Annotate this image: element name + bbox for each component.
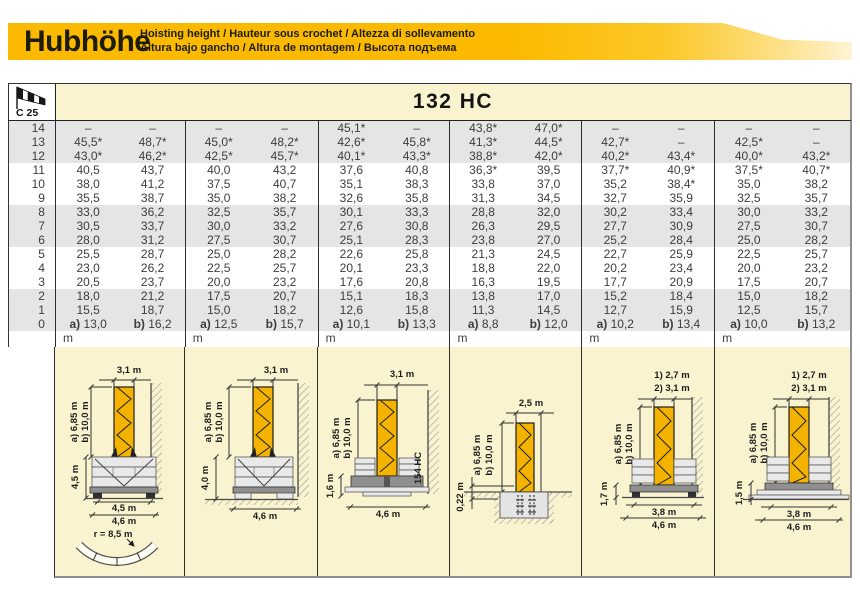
column-2: a) 12,5b) 15,7 [185, 317, 318, 331]
height-value: 20,0 [715, 261, 782, 275]
height-value: – [648, 121, 714, 135]
height-value: 37,5* [715, 163, 782, 177]
height-value: 30,7 [783, 219, 850, 233]
height-value: 28,2 [252, 247, 318, 261]
subtitle-block: Hoisting height / Hauteur sous crochet /… [140, 28, 475, 55]
height-value: 23,3 [384, 261, 449, 275]
column-6: 32,535,7 [714, 191, 850, 205]
column-2: 25,028,2 [185, 247, 318, 261]
height-value: 25,8 [384, 247, 449, 261]
height-value: 21,2 [120, 289, 184, 303]
unit-label: m [449, 331, 581, 347]
height-value: 32,7 [582, 191, 648, 205]
height-value: 15,1 [319, 289, 384, 303]
height-value: 45,8* [384, 135, 449, 149]
column-3: 15,118,3 [318, 289, 450, 303]
height-value: 43,7 [120, 163, 184, 177]
height-value: 45,0* [186, 135, 252, 149]
height-value: 31,2 [120, 233, 184, 247]
height-value: – [120, 121, 184, 135]
row-label: 10 [9, 177, 55, 191]
height-value: 40,7 [252, 177, 318, 191]
column-3: 35,138,3 [318, 177, 450, 191]
dim-depth: 0,22 m [455, 482, 466, 512]
tower-mast [377, 400, 397, 476]
table-row: 14––––45,1*–43,8*47,0*–––– [9, 121, 850, 135]
height-value: – [252, 121, 318, 135]
column-3: a) 10,1b) 13,3 [318, 317, 450, 331]
height-value: 38,8* [450, 149, 515, 163]
height-value: 25,0 [715, 233, 782, 247]
height-value: 23,2 [252, 275, 318, 289]
height-value: 41,3* [450, 135, 515, 149]
unit-label: m [185, 331, 318, 347]
height-value: 22,6 [319, 247, 384, 261]
table-row: 0a) 13,0b) 16,2a) 12,5b) 15,7a) 10,1b) 1… [9, 317, 850, 331]
height-value: 45,7* [252, 149, 318, 163]
column-3: 25,128,3 [318, 233, 450, 247]
column-2: 15,018,2 [185, 303, 318, 317]
height-value: 25,7 [783, 247, 850, 261]
height-value: 27,0 [516, 233, 581, 247]
column-1: 20,523,7 [55, 275, 185, 289]
height-value: 25,0 [186, 247, 252, 261]
column-2: 35,038,2 [185, 191, 318, 205]
column-3: 17,620,8 [318, 275, 450, 289]
height-value: 35,0 [715, 177, 782, 191]
dim-base-height: 4,5 m [70, 465, 81, 489]
height-value: 28,0 [56, 233, 120, 247]
row-label: 13 [9, 135, 55, 149]
tower-mast [110, 387, 138, 459]
height-value: 20,0 [186, 275, 252, 289]
row-label: 7 [9, 219, 55, 233]
height-value: 20,8 [384, 275, 449, 289]
height-value: 33,7 [120, 219, 184, 233]
column-3: 22,625,8 [318, 247, 450, 261]
height-value: 22,5 [715, 247, 782, 261]
dim-overall-width: 4,6 m [376, 509, 400, 520]
dim-top-width: 2,5 m [519, 398, 543, 409]
column-1: 38,041,2 [55, 177, 185, 191]
height-value: 44,5* [516, 135, 581, 149]
column-3: 37,640,8 [318, 163, 450, 177]
column-5: –– [581, 121, 714, 135]
height-value: 23,7 [120, 275, 184, 289]
height-value: 35,8 [384, 191, 449, 205]
table-row: 1140,543,740,043,237,640,836,3*39,537,7*… [9, 163, 850, 177]
height-value: 37,5 [186, 177, 252, 191]
row-label: 0 [9, 317, 55, 331]
height-value: 40,0 [186, 163, 252, 177]
dim-overall-width: 4,6 m [652, 520, 676, 531]
column-6: 40,0*43,2* [714, 149, 850, 163]
dim-top-width: 3,1 m [264, 365, 288, 376]
height-value: 20,7 [252, 289, 318, 303]
column-4: 21,324,5 [449, 247, 581, 261]
height-value: 42,5* [186, 149, 252, 163]
height-value: 23,2 [783, 261, 850, 275]
wind-class-badge: C 25 [9, 84, 56, 120]
height-value: 33,8 [450, 177, 515, 191]
table-row: 320,523,720,023,217,620,816,319,517,720,… [9, 275, 850, 289]
height-value: – [582, 121, 648, 135]
column-5: 17,720,9 [581, 275, 714, 289]
height-value: 19,5 [516, 275, 581, 289]
table-row: 115,518,715,018,212,615,811,314,512,715,… [9, 303, 850, 317]
height-value: 45,5* [56, 135, 120, 149]
column-5: 15,218,4 [581, 289, 714, 303]
column-5: 32,735,9 [581, 191, 714, 205]
height-value: 20,7 [783, 275, 850, 289]
dim-mast-a: a) 6,85 m [69, 402, 80, 443]
column-1: 18,021,2 [55, 289, 185, 303]
column-5: 40,2*43,4* [581, 149, 714, 163]
table-row: 935,538,735,038,232,635,831,334,532,735,… [9, 191, 850, 205]
column-4: 11,314,5 [449, 303, 581, 317]
height-value: 35,2 [582, 177, 648, 191]
column-6: –– [714, 121, 850, 135]
height-value: 25,5 [56, 247, 120, 261]
height-value: 30,7 [252, 233, 318, 247]
height-value: 40,5 [56, 163, 120, 177]
height-value: 15,0 [186, 303, 252, 317]
height-value: 25,1 [319, 233, 384, 247]
table-header-row: C 25 132 HC [8, 83, 852, 121]
height-value: – [715, 121, 782, 135]
column-3: 32,635,8 [318, 191, 450, 205]
column-4: 33,837,0 [449, 177, 581, 191]
table-row: 525,528,725,028,222,625,821,324,522,725,… [9, 247, 850, 261]
height-value: 27,6 [319, 219, 384, 233]
height-value: 26,3 [450, 219, 515, 233]
diagram-crossbase-pads: 1) 2,7 m 2) 3,1 m a) 6,85 m b) 10,0 m [714, 347, 851, 576]
height-value: a) 12,5 [186, 317, 252, 331]
height-value: 17,5 [186, 289, 252, 303]
column-4: 38,8*42,0* [449, 149, 581, 163]
dim-mast-b: b) 10,0 m [624, 423, 635, 464]
height-value: 18,0 [56, 289, 120, 303]
height-value: 35,5 [56, 191, 120, 205]
column-4: a) 8,8b) 12,0 [449, 317, 581, 331]
column-6: 15,018,2 [714, 289, 850, 303]
dim-top-width: 3,1 m [390, 369, 414, 380]
height-value: 15,0 [715, 289, 782, 303]
column-1: –– [55, 121, 185, 135]
dim-top-width-1: 1) 2,7 m [654, 370, 689, 381]
height-value: 12,5 [715, 303, 782, 317]
row-label: 12 [9, 149, 55, 163]
height-value: 18,3 [384, 289, 449, 303]
height-value: 35,7 [252, 205, 318, 219]
page-title: Hubhöhe [24, 23, 150, 60]
height-value: 14,5 [516, 303, 581, 317]
height-value: 20,1 [319, 261, 384, 275]
height-value: 31,3 [450, 191, 515, 205]
height-value: 17,0 [516, 289, 581, 303]
height-value: 17,6 [319, 275, 384, 289]
height-value: 18,8 [450, 261, 515, 275]
column-5: 25,228,4 [581, 233, 714, 247]
height-value: 42,6* [319, 135, 384, 149]
table-row: 833,036,232,535,730,133,328,832,030,233,… [9, 205, 850, 219]
diagram-rail-sleepers: 3,1 m a) 6,85 m b) 10,0 m [184, 347, 317, 576]
height-value: 25,2 [582, 233, 648, 247]
height-value: 23,4 [648, 261, 714, 275]
column-5: 35,238,4* [581, 177, 714, 191]
column-3: 12,615,8 [318, 303, 450, 317]
height-value: 15,2 [582, 289, 648, 303]
column-6: 25,028,2 [714, 233, 850, 247]
table-row: 423,026,222,525,720,123,318,822,020,223,… [9, 261, 850, 275]
column-6: 30,033,2 [714, 205, 850, 219]
column-4: 31,334,5 [449, 191, 581, 205]
column-1: 40,543,7 [55, 163, 185, 177]
dim-overall-width: 4,6 m [787, 522, 811, 533]
height-value: 16,3 [450, 275, 515, 289]
height-value: – [384, 121, 449, 135]
row-label: 9 [9, 191, 55, 205]
height-value: 20,9 [648, 275, 714, 289]
column-1: 45,5*48,7* [55, 135, 185, 149]
height-value: 15,7 [783, 303, 850, 317]
subtitle-line-2: Altura bajo gancho / Altura de montagem … [140, 42, 475, 56]
dim-track-radius: r = 8,5 m [94, 529, 133, 540]
column-2: 37,540,7 [185, 177, 318, 191]
dim-mast-a: a) 6,85 m [472, 435, 483, 476]
dim-top-width-2: 2) 3,1 m [654, 383, 689, 394]
column-1: 23,026,2 [55, 261, 185, 275]
column-4: 41,3*44,5* [449, 135, 581, 149]
height-value: 23,0 [56, 261, 120, 275]
row-label: 6 [9, 233, 55, 247]
height-value: – [186, 121, 252, 135]
column-3: 40,1*43,3* [318, 149, 450, 163]
column-2: 30,033,2 [185, 219, 318, 233]
diagram-crossbase-wheels: 1) 2,7 m 2) 3,1 m a) 6,85 m b) 10,0 m [581, 347, 714, 576]
unit-label: m [581, 331, 714, 347]
datasheet-page: Hubhöhe Hoisting height / Hauteur sous c… [0, 0, 860, 600]
column-2: 20,023,2 [185, 275, 318, 289]
column-3: 27,630,8 [318, 219, 450, 233]
dim-overall-width: 4,6 m [112, 516, 136, 527]
height-value: 42,5* [715, 135, 782, 149]
unit-label: m [318, 331, 450, 347]
height-value: a) 8,8 [450, 317, 515, 331]
row-label: 11 [9, 163, 55, 177]
height-value: 18,2 [783, 289, 850, 303]
height-value: 20,5 [56, 275, 120, 289]
column-3: 45,1*– [318, 121, 450, 135]
height-value: 25,7 [252, 261, 318, 275]
height-value: 38,7 [120, 191, 184, 205]
height-value: 36,2 [120, 205, 184, 219]
height-value: 43,8* [450, 121, 515, 135]
height-value: 37,0 [516, 177, 581, 191]
height-value: 24,5 [516, 247, 581, 261]
row-label: 8 [9, 205, 55, 219]
height-value: 12,6 [319, 303, 384, 317]
wind-class-label: C 25 [16, 107, 38, 119]
height-value: 18,7 [120, 303, 184, 317]
height-value: 15,8 [384, 303, 449, 317]
height-value: 43,2* [783, 149, 850, 163]
height-value: b) 16,2 [120, 317, 184, 331]
height-value: 43,3* [384, 149, 449, 163]
column-5: 12,715,9 [581, 303, 714, 317]
tower-mast [516, 423, 534, 492]
height-value: 11,3 [450, 303, 515, 317]
column-5: 22,725,9 [581, 247, 714, 261]
height-value: 41,2 [120, 177, 184, 191]
diagram-rail-crossbase: 3,1 m a) 6,85 m b) 10,0 m [55, 347, 184, 576]
height-value: b) 13,3 [384, 317, 449, 331]
height-value: 28,2 [783, 233, 850, 247]
height-value: 32,6 [319, 191, 384, 205]
dim-mast-b: b) 10,0 m [214, 401, 225, 442]
dim-track-width: 4,5 m [112, 503, 136, 514]
column-1: 30,533,7 [55, 219, 185, 233]
height-value: 32,5 [186, 205, 252, 219]
height-value: 48,7* [120, 135, 184, 149]
height-value: 33,0 [56, 205, 120, 219]
column-6: 22,525,7 [714, 247, 850, 261]
column-2: 32,535,7 [185, 205, 318, 219]
height-value: – [783, 121, 850, 135]
height-value: 38,2 [783, 177, 850, 191]
height-value: 32,0 [516, 205, 581, 219]
column-2: 27,530,7 [185, 233, 318, 247]
height-value: 33,2 [783, 205, 850, 219]
diagram-foundation-anchor: 2,5 m a) 6,85 m b) 10,0 m [449, 347, 581, 576]
column-4: 13,817,0 [449, 289, 581, 303]
tower-mast [249, 387, 277, 459]
height-value: 35,1 [319, 177, 384, 191]
column-2: 45,0*48,2* [185, 135, 318, 149]
column-5: 37,7*40,9* [581, 163, 714, 177]
height-value: 23,8 [450, 233, 515, 247]
column-2: 22,525,7 [185, 261, 318, 275]
height-value: 39,5 [516, 163, 581, 177]
table-row: 1243,0*46,2*42,5*45,7*40,1*43,3*38,8*42,… [9, 149, 850, 163]
tower-mast [654, 407, 674, 485]
height-value: b) 13,4 [648, 317, 714, 331]
table-row: 730,533,730,033,227,630,826,329,527,730,… [9, 219, 850, 233]
height-value: 26,2 [120, 261, 184, 275]
column-6: 35,038,2 [714, 177, 850, 191]
height-value: 37,7* [582, 163, 648, 177]
column-1: 35,538,7 [55, 191, 185, 205]
column-3: 42,6*45,8* [318, 135, 450, 149]
curved-track [79, 545, 155, 566]
height-value: a) 10,2 [582, 317, 648, 331]
column-6: 37,5*40,7* [714, 163, 850, 177]
dim-mast-a: a) 6,85 m [203, 402, 214, 443]
height-value: 42,7* [582, 135, 648, 149]
column-1: 25,528,7 [55, 247, 185, 261]
column-5: 20,223,4 [581, 261, 714, 275]
height-value: b) 13,2 [783, 317, 850, 331]
dim-mast-a: a) 6,85 m [331, 418, 342, 459]
height-value: 13,8 [450, 289, 515, 303]
tower-type-label: 154 HC [413, 452, 424, 484]
column-5: a) 10,2b) 13,4 [581, 317, 714, 331]
height-value: 34,5 [516, 191, 581, 205]
height-value: 21,3 [450, 247, 515, 261]
height-value: 33,3 [384, 205, 449, 219]
dim-mast-b: b) 10,0 m [484, 434, 495, 475]
height-value: b) 12,0 [516, 317, 581, 331]
dim-mast-b: b) 10,0 m [342, 417, 353, 458]
height-value: 30,9 [648, 219, 714, 233]
height-value: 30,0 [186, 219, 252, 233]
ballast-base [205, 457, 298, 505]
row-label: 5 [9, 247, 55, 261]
column-1: a) 13,0b) 16,2 [55, 317, 185, 331]
row-label: 2 [9, 289, 55, 303]
diagram-area: 3,1 m a) 6,85 m b) 10,0 m [54, 347, 852, 578]
column-5: 42,7*– [581, 135, 714, 149]
column-4: 36,3*39,5 [449, 163, 581, 177]
height-value: 38,3 [384, 177, 449, 191]
column-4: 43,8*47,0* [449, 121, 581, 135]
row-label: 3 [9, 275, 55, 289]
height-value: 35,9 [648, 191, 714, 205]
model-title: 132 HC [56, 84, 850, 120]
height-value: 40,0* [715, 149, 782, 163]
header-band: Hubhöhe Hoisting height / Hauteur sous c… [8, 23, 852, 60]
height-value: – [648, 135, 714, 149]
height-value: 28,8 [450, 205, 515, 219]
height-value: 40,9* [648, 163, 714, 177]
height-value: – [783, 135, 850, 149]
height-value: 37,6 [319, 163, 384, 177]
height-value: b) 15,7 [252, 317, 318, 331]
table-row: 628,031,227,530,725,128,323,827,025,228,… [9, 233, 850, 247]
height-value: 28,4 [648, 233, 714, 247]
height-value: 40,8 [384, 163, 449, 177]
height-value: 30,2 [582, 205, 648, 219]
subtitle-line-1: Hoisting height / Hauteur sous crochet /… [140, 28, 475, 42]
dim-top-width: 3,1 m [117, 365, 141, 376]
wall-hatch [298, 383, 309, 497]
column-1: 43,0*46,2* [55, 149, 185, 163]
tower-mast [789, 407, 809, 483]
column-6: 20,023,2 [714, 261, 850, 275]
height-value: 12,7 [582, 303, 648, 317]
diagram-static-base: 3,1 m a) 6,85 m b) 10,0 m [317, 347, 449, 576]
height-value: 17,7 [582, 275, 648, 289]
row-label: 4 [9, 261, 55, 275]
column-5: 30,233,4 [581, 205, 714, 219]
height-value: 48,2* [252, 135, 318, 149]
height-value: 30,8 [384, 219, 449, 233]
dim-base-height: 4,0 m [200, 466, 211, 490]
height-value: 22,0 [516, 261, 581, 275]
height-value: 35,7 [783, 191, 850, 205]
height-value: 15,9 [648, 303, 714, 317]
height-value: 27,5 [186, 233, 252, 247]
height-value: 45,1* [319, 121, 384, 135]
column-2: 40,043,2 [185, 163, 318, 177]
dim-top-width-1: 1) 2,7 m [791, 370, 826, 381]
wall-hatch [428, 390, 439, 494]
height-value: 22,5 [186, 261, 252, 275]
dim-overall-width: 4,6 m [253, 511, 277, 522]
column-6: 17,520,7 [714, 275, 850, 289]
height-value: 29,5 [516, 219, 581, 233]
height-value: 43,4* [648, 149, 714, 163]
